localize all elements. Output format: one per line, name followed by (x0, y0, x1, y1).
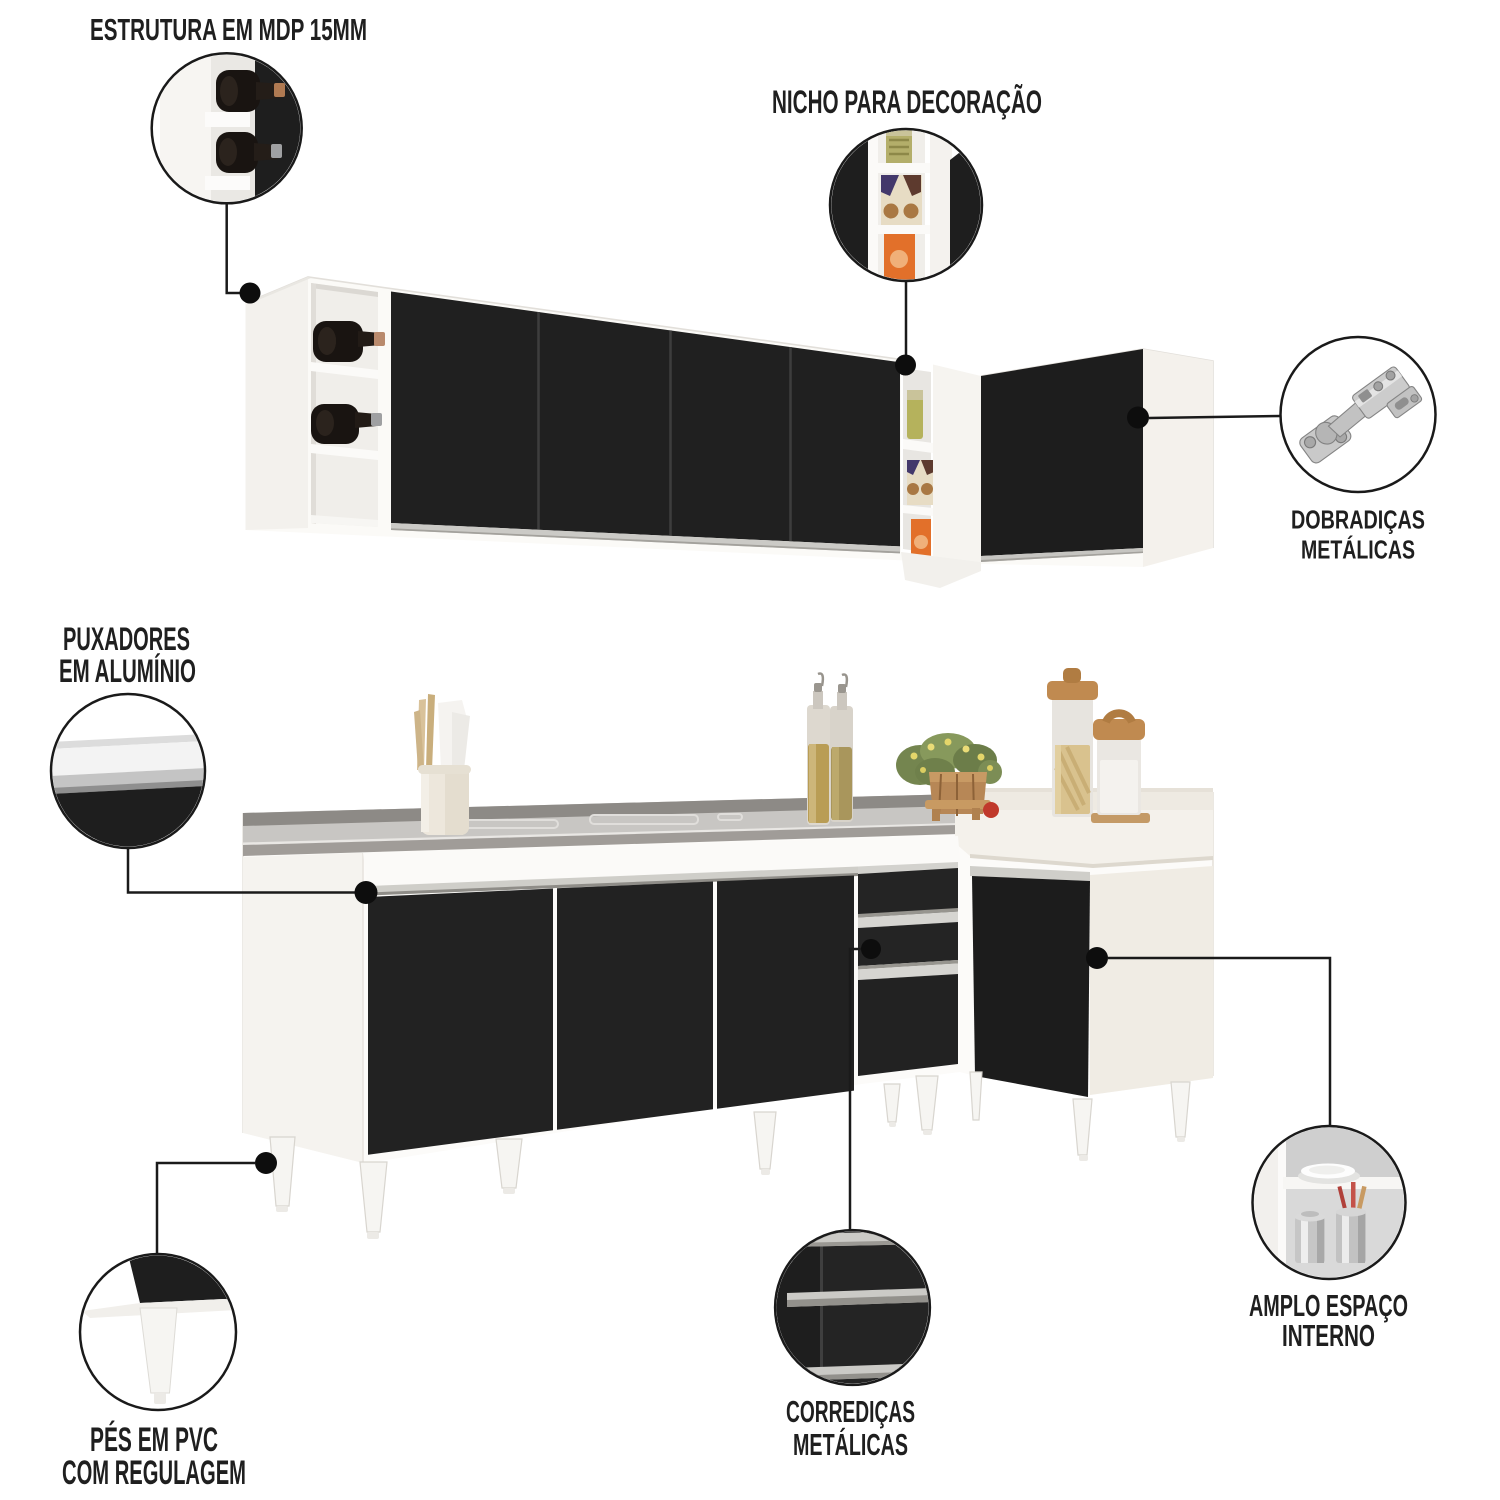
svg-text:METÁLICAS: METÁLICAS (793, 1427, 908, 1462)
svg-text:CORREDIÇAS: CORREDIÇAS (786, 1394, 915, 1429)
svg-text:METÁLICAS: METÁLICAS (1301, 535, 1415, 565)
svg-text:DOBRADIÇAS: DOBRADIÇAS (1291, 505, 1425, 535)
svg-text:EM ALUMÍNIO: EM ALUMÍNIO (59, 653, 196, 689)
svg-text:INTERNO: INTERNO (1282, 1318, 1375, 1353)
svg-text:ESTRUTURA EM MDP 15MM: ESTRUTURA EM MDP 15MM (90, 12, 367, 47)
svg-text:PUXADORES: PUXADORES (63, 621, 190, 657)
svg-text:NICHO PARA DECORAÇÃO: NICHO PARA DECORAÇÃO (772, 84, 1042, 120)
svg-text:COM REGULAGEM: COM REGULAGEM (62, 1454, 246, 1492)
